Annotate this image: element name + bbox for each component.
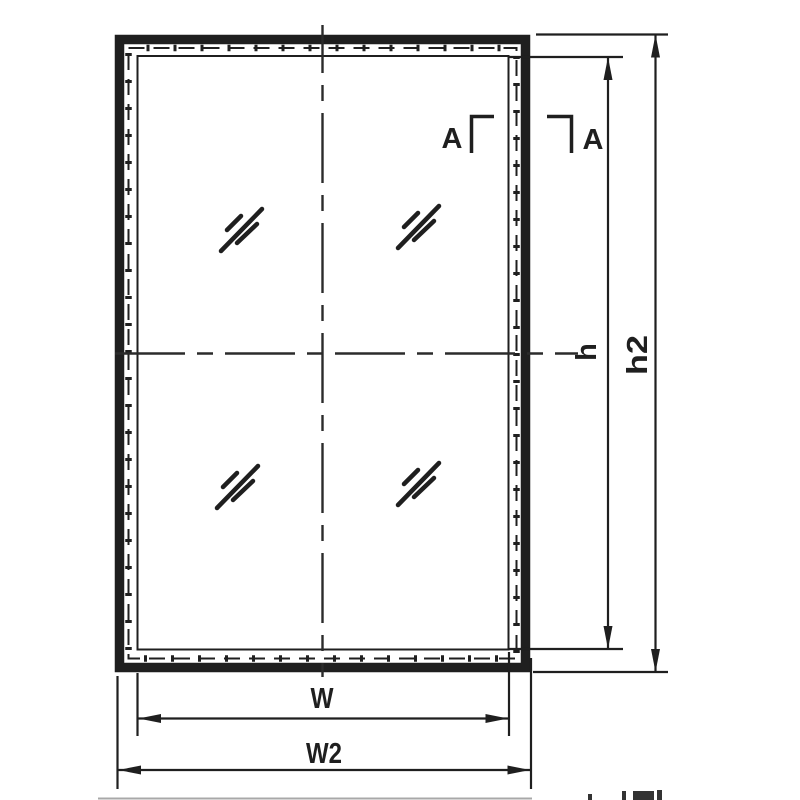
dim-label-h2: h2: [622, 335, 654, 375]
window-elevation-drawing: A A h h2 W W2: [0, 0, 800, 800]
section-label-left: A: [442, 123, 463, 155]
glass-marks: [217, 206, 439, 508]
technical-drawing-canvas: A A h h2 W W2: [0, 0, 800, 800]
glass-mark-icon: [398, 206, 439, 248]
dim-label-h: h: [571, 343, 603, 361]
centerlines: [103, 25, 578, 677]
glass-mark-icon: [221, 209, 262, 251]
arrow-down-icon: [604, 626, 613, 649]
bottom-edge-clipped-content: [98, 790, 662, 800]
glass-mark-icon: [398, 463, 439, 505]
section-cut-bracket-left: [472, 117, 495, 154]
clipped-watermark-marks: [588, 790, 662, 800]
section-cut-bracket-right: [547, 117, 572, 154]
section-label-right: A: [583, 124, 604, 156]
arrow-down-icon: [651, 649, 660, 672]
arrow-left-icon: [139, 714, 162, 723]
dim-label-w2: W2: [306, 738, 342, 770]
arrow-right-icon: [508, 766, 531, 775]
dim-label-w: W: [311, 683, 335, 715]
glass-mark-icon: [217, 466, 258, 508]
arrow-left-icon: [119, 766, 142, 775]
arrow-up-icon: [651, 35, 660, 58]
arrow-up-icon: [604, 57, 613, 80]
arrow-right-icon: [486, 714, 509, 723]
